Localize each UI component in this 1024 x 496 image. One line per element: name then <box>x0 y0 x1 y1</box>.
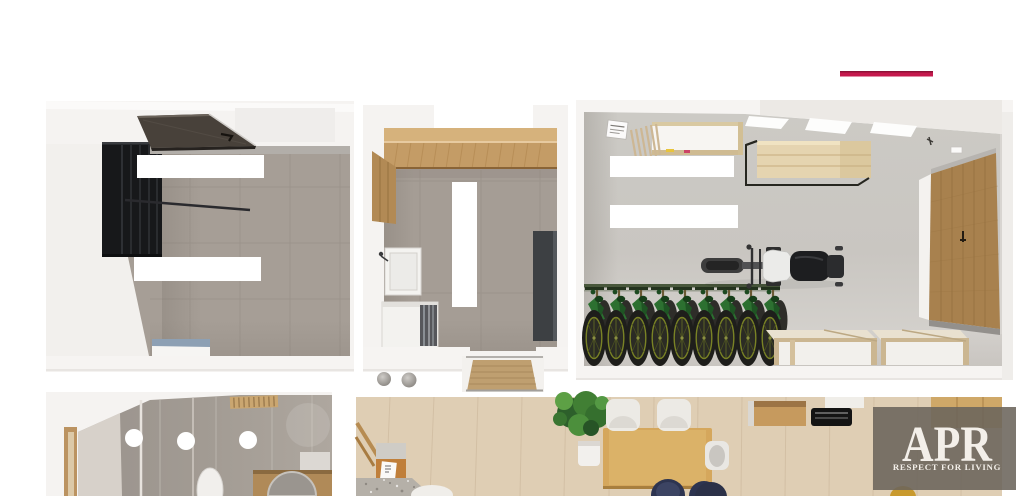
svg-text:RESPECT FOR LIVING: RESPECT FOR LIVING <box>893 462 1001 472</box>
